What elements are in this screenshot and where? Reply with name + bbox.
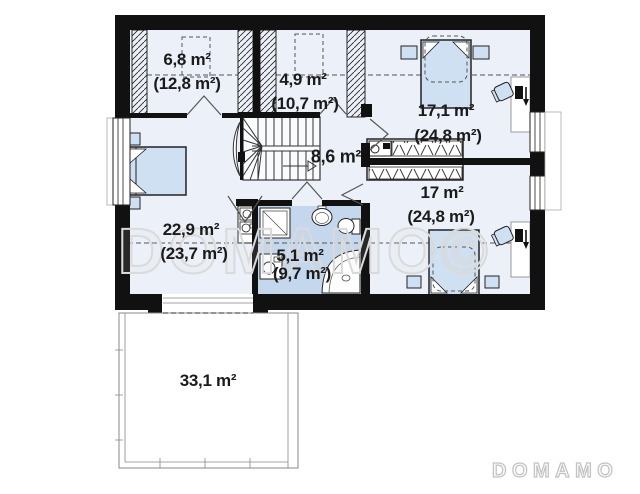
label-bedroom-left-total: (23,7 m²) — [160, 244, 227, 264]
label-room-top-middle-total: (10,7 m²) — [271, 94, 338, 114]
label-room-top-middle-area: 4,9 m² — [279, 70, 326, 90]
window-sill-right — [545, 112, 561, 210]
label-room-top-left-area: 6,8 m² — [163, 50, 210, 70]
label-bedroom-left-area: 22,9 m² — [163, 220, 220, 240]
label-hall-area: 8,6 m² — [311, 147, 361, 168]
floor-plan: DOMAMO© DOMAMO 6,8 m² (12,8 m²) 4,9 m² (… — [0, 0, 640, 494]
label-room-top-left-total: (12,8 m²) — [153, 74, 220, 94]
label-bathroom-total: (9,7 m²) — [273, 264, 331, 284]
label-terrace-area: 33,1 m² — [180, 371, 237, 391]
toilet — [338, 219, 360, 235]
window-right-lower — [530, 176, 545, 210]
window-left — [107, 118, 130, 205]
window-right-upper — [530, 112, 545, 152]
staircase — [233, 117, 320, 180]
label-bedroom-bottom-right-total: (24,8 m²) — [407, 207, 474, 227]
label-bedroom-top-right-total: (24,8 m²) — [414, 126, 481, 146]
label-bedroom-top-right-area: 17,1 m² — [418, 101, 475, 121]
terrace-door — [162, 294, 253, 310]
label-bedroom-bottom-right-area: 17 m² — [421, 183, 464, 203]
label-bathroom-area: 5,1 m² — [276, 246, 323, 266]
shower — [260, 208, 290, 238]
